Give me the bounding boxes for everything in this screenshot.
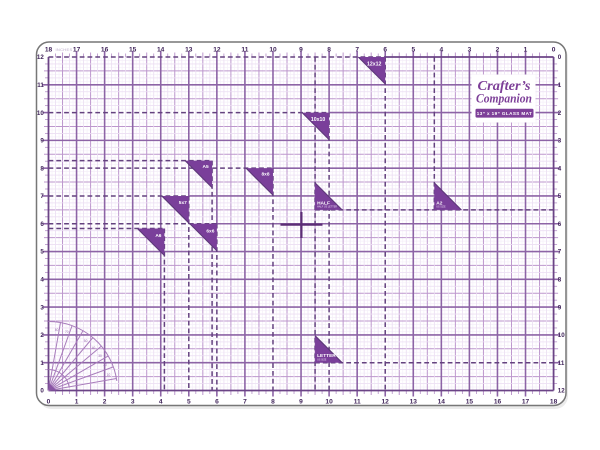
svg-text:9: 9 [40,138,44,145]
svg-text:3: 3 [131,399,135,406]
svg-text:US SIZE: US SIZE [317,359,327,362]
svg-text:8: 8 [327,47,331,54]
svg-text:17: 17 [522,399,530,406]
svg-text:0: 0 [40,388,44,395]
svg-text:10: 10 [325,399,333,406]
svg-text:11: 11 [37,82,44,89]
svg-text:12: 12 [558,388,565,395]
svg-text:11: 11 [558,360,565,367]
svg-text:1: 1 [75,399,79,406]
svg-text:INCHES: INCHES [56,47,73,52]
svg-text:6: 6 [383,47,387,54]
svg-text:6x6: 6x6 [206,228,214,234]
svg-text:US SIZE: US SIZE [436,206,446,209]
svg-text:8: 8 [271,399,275,406]
svg-text:13” x 19” GLASS MAT: 13” x 19” GLASS MAT [477,111,533,116]
svg-text:13: 13 [410,399,418,406]
svg-text:8: 8 [40,165,44,172]
svg-text:10: 10 [558,332,565,339]
svg-text:13: 13 [185,47,193,54]
svg-text:0: 0 [558,54,562,61]
svg-text:18: 18 [550,399,558,406]
svg-text:3: 3 [40,304,44,311]
svg-text:80: 80 [55,328,59,332]
svg-text:1: 1 [524,47,528,54]
svg-text:5: 5 [411,47,415,54]
svg-text:5: 5 [558,193,562,200]
svg-text:14: 14 [157,47,165,54]
svg-text:3: 3 [558,138,562,145]
svg-text:12x12: 12x12 [367,61,382,67]
svg-text:16: 16 [494,399,502,406]
svg-text:15: 15 [129,47,137,54]
svg-text:7: 7 [558,249,562,256]
svg-text:20: 20 [103,363,107,367]
svg-text:7: 7 [40,193,44,200]
svg-text:6: 6 [558,221,562,228]
svg-text:7: 7 [355,47,359,54]
svg-text:2: 2 [40,332,44,339]
svg-text:9: 9 [558,304,562,311]
svg-text:9: 9 [299,47,303,54]
svg-text:10: 10 [107,373,111,377]
svg-text:11: 11 [354,399,361,406]
svg-text:16: 16 [101,47,109,54]
svg-text:A6: A6 [155,233,161,239]
svg-text:12: 12 [37,54,44,61]
svg-text:0: 0 [552,47,556,54]
svg-text:15: 15 [466,399,474,406]
svg-text:1: 1 [558,82,562,89]
svg-text:10: 10 [269,47,277,54]
svg-text:30: 30 [98,354,102,358]
svg-text:5x7: 5x7 [179,200,187,206]
svg-text:5: 5 [40,249,44,256]
svg-text:14: 14 [438,399,446,406]
svg-text:6: 6 [215,399,219,406]
svg-text:5: 5 [187,399,191,406]
svg-text:4: 4 [159,399,163,406]
svg-text:4: 4 [40,277,44,284]
svg-text:9: 9 [299,399,303,406]
svg-text:40: 40 [92,346,96,350]
svg-text:10x10: 10x10 [311,117,326,123]
svg-text:10: 10 [37,110,44,117]
svg-text:18: 18 [45,47,53,54]
svg-text:70: 70 [65,330,69,334]
svg-text:2: 2 [103,399,107,406]
svg-text:HALF US LETTER: HALF US LETTER [317,206,337,209]
svg-text:3: 3 [468,47,472,54]
svg-text:8x8: 8x8 [261,172,269,178]
svg-text:8: 8 [558,277,562,284]
svg-text:12: 12 [382,399,390,406]
svg-text:Companion: Companion [476,91,532,106]
svg-text:2: 2 [496,47,500,54]
svg-text:17: 17 [73,47,81,54]
svg-text:7: 7 [243,399,247,406]
svg-text:4: 4 [439,47,443,54]
svg-text:2: 2 [558,110,562,117]
svg-text:4: 4 [558,165,562,172]
svg-text:A5: A5 [203,164,209,170]
svg-text:12: 12 [213,47,221,54]
svg-text:0: 0 [47,399,51,406]
svg-text:6: 6 [40,221,44,228]
svg-text:60: 60 [75,334,79,338]
svg-text:11: 11 [241,47,248,54]
svg-text:50: 50 [84,339,88,343]
svg-text:1: 1 [40,360,44,367]
